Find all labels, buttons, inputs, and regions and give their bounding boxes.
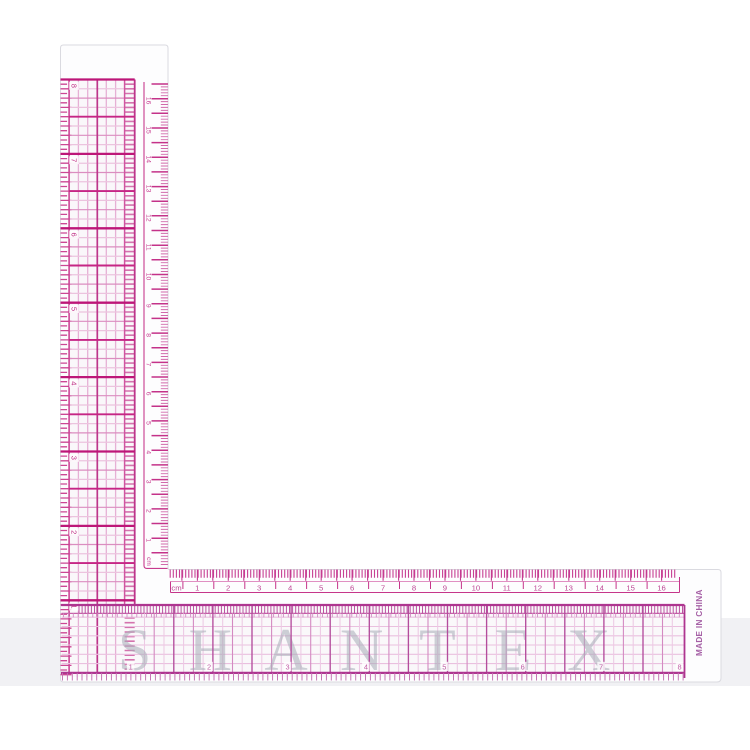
svg-text:11: 11: [144, 244, 151, 251]
svg-text:1: 1: [129, 663, 133, 672]
svg-text:13: 13: [144, 185, 151, 193]
svg-text:3: 3: [144, 480, 151, 484]
svg-text:1: 1: [195, 584, 199, 593]
svg-text:4: 4: [144, 450, 151, 454]
svg-text:4: 4: [364, 663, 368, 672]
svg-text:9: 9: [144, 304, 151, 308]
svg-text:7: 7: [69, 158, 78, 162]
svg-text:4: 4: [288, 584, 293, 593]
svg-text:1: 1: [144, 538, 151, 542]
svg-text:3: 3: [285, 663, 289, 672]
svg-text:12: 12: [534, 584, 543, 593]
svg-text:14: 14: [144, 156, 151, 164]
svg-text:7: 7: [599, 663, 603, 672]
svg-text:3: 3: [257, 584, 261, 593]
svg-text:6: 6: [69, 233, 78, 237]
svg-text:13: 13: [564, 584, 573, 593]
svg-text:8: 8: [69, 84, 78, 88]
svg-text:6: 6: [144, 392, 151, 396]
svg-text:2: 2: [207, 663, 211, 672]
svg-text:2: 2: [69, 530, 78, 534]
svg-text:14: 14: [595, 584, 604, 593]
svg-text:7: 7: [144, 363, 151, 367]
svg-text:16: 16: [144, 97, 151, 105]
svg-text:8: 8: [144, 333, 151, 337]
svg-text:7: 7: [381, 584, 385, 593]
svg-text:2: 2: [226, 584, 230, 593]
svg-text:16: 16: [657, 584, 666, 593]
svg-text:6: 6: [521, 663, 525, 672]
svg-text:10: 10: [472, 584, 481, 593]
svg-text:15: 15: [144, 126, 151, 134]
svg-text:8: 8: [677, 663, 681, 672]
svg-text:MADE IN CHINA: MADE IN CHINA: [695, 589, 704, 656]
svg-text:6: 6: [350, 584, 354, 593]
svg-text:8: 8: [412, 584, 416, 593]
svg-text:cm: cm: [145, 557, 152, 566]
svg-text:11: 11: [503, 584, 511, 593]
svg-text:2: 2: [144, 509, 151, 513]
svg-text:10: 10: [144, 273, 151, 281]
svg-text:5: 5: [144, 421, 151, 425]
svg-text:12: 12: [144, 214, 151, 222]
svg-text:5: 5: [69, 307, 78, 311]
svg-text:3: 3: [69, 456, 78, 460]
svg-text:4: 4: [69, 381, 78, 385]
svg-text:5: 5: [319, 584, 323, 593]
svg-text:9: 9: [443, 584, 447, 593]
svg-text:cm: cm: [171, 584, 181, 593]
svg-text:5: 5: [442, 663, 446, 672]
svg-text:15: 15: [626, 584, 635, 593]
